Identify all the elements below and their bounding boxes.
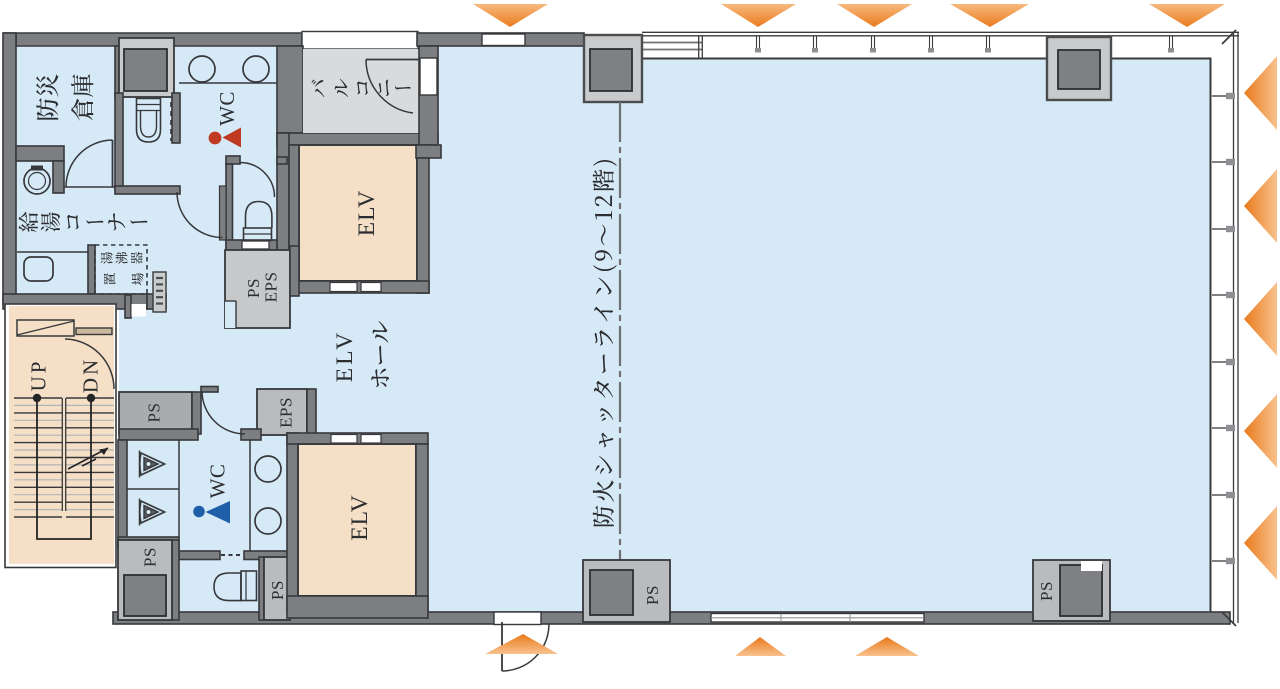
svg-text:ELV: ELV xyxy=(332,330,358,383)
svg-text:PS: PS xyxy=(643,585,662,605)
svg-text:WC: WC xyxy=(206,464,230,499)
svg-text:PS: PS xyxy=(1037,581,1056,601)
svg-text:ELV: ELV xyxy=(354,190,380,237)
svg-text:PS: PS xyxy=(268,580,287,600)
svg-text:DN: DN xyxy=(79,357,103,393)
svg-text:EPS: EPS xyxy=(276,397,295,428)
svg-text:PS: PS xyxy=(144,403,163,423)
svg-text:UP: UP xyxy=(27,359,51,392)
svg-text:EPS: EPS xyxy=(261,272,280,303)
svg-text:PS: PS xyxy=(140,547,159,567)
svg-text:WC: WC xyxy=(215,91,239,126)
svg-text:ELV: ELV xyxy=(347,494,373,541)
svg-text:PS: PS xyxy=(244,278,263,298)
